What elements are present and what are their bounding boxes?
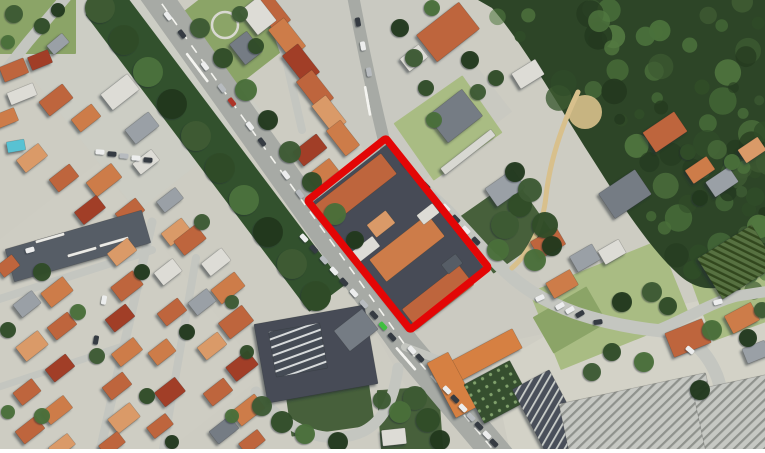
forest-tree (654, 101, 668, 115)
forest-tree (683, 261, 702, 280)
tree (165, 435, 179, 449)
forest-tree (607, 59, 629, 81)
tree (680, 144, 696, 160)
forest-tree (588, 10, 610, 32)
tree (34, 408, 50, 424)
tree (258, 110, 278, 130)
forest-tree (682, 38, 697, 53)
tree (232, 6, 248, 22)
forest-tree (664, 243, 688, 267)
forest-tree (715, 19, 728, 32)
car (95, 149, 104, 155)
tree (34, 18, 50, 34)
tree (690, 380, 710, 400)
forest-tree (639, 152, 659, 172)
tree (225, 295, 239, 309)
tree (470, 84, 486, 100)
satellite-imagery (0, 0, 765, 453)
forest-tree (646, 211, 656, 221)
tree (5, 5, 23, 23)
tree (461, 51, 479, 69)
tree (301, 281, 331, 311)
house (381, 428, 407, 446)
forest-tree (521, 8, 535, 22)
tree (426, 112, 442, 128)
tree (134, 264, 150, 280)
tree (279, 141, 301, 163)
tree (524, 249, 546, 271)
tree (225, 409, 239, 423)
tree (229, 185, 259, 215)
tree (0, 322, 16, 338)
world (0, 0, 765, 453)
tree (488, 70, 504, 86)
tree (416, 408, 440, 432)
forest-tree (699, 114, 717, 132)
forest-tree (752, 17, 765, 30)
tree (373, 391, 391, 409)
forest-tree (746, 187, 765, 206)
tree (532, 212, 558, 238)
forest-tree (700, 7, 717, 24)
forest-tree (634, 109, 644, 119)
tree (391, 19, 409, 37)
tree (271, 411, 293, 433)
tree (205, 153, 235, 183)
tree (109, 25, 139, 55)
forest-tree (708, 140, 727, 159)
tree (51, 3, 65, 17)
car (119, 153, 128, 159)
tree (139, 388, 155, 404)
tree (692, 190, 708, 206)
tree (518, 178, 542, 202)
tree (583, 363, 601, 381)
tree (418, 80, 434, 96)
tree (389, 401, 411, 423)
tree (346, 231, 364, 249)
tree (157, 89, 187, 119)
tree (253, 217, 283, 247)
tree (252, 396, 272, 416)
forest-tree (754, 95, 764, 105)
tree (194, 214, 210, 230)
tree (739, 329, 757, 347)
tree (295, 424, 315, 444)
forest-tree (614, 114, 625, 125)
tree (89, 348, 105, 364)
tree (642, 282, 662, 302)
forest-tree (604, 40, 619, 55)
tree (190, 18, 210, 38)
tree (240, 345, 254, 359)
tree (542, 236, 562, 256)
forest-tree (489, 8, 506, 25)
tree (1, 35, 15, 49)
tree (235, 79, 257, 101)
forest-tree (653, 173, 679, 199)
forest-tree (636, 27, 655, 46)
forest-tree (648, 54, 673, 79)
car (107, 151, 116, 157)
car (143, 157, 152, 163)
tree (181, 121, 211, 151)
tree (70, 304, 86, 320)
tree (505, 162, 525, 182)
forest-tree (551, 70, 577, 96)
forest-tree (738, 108, 749, 119)
car (131, 155, 140, 161)
image-frame-strip (0, 449, 765, 453)
tree (1, 405, 15, 419)
tree (133, 57, 163, 87)
tree (248, 38, 264, 54)
tree (612, 292, 632, 312)
tree (634, 352, 654, 372)
forest-tree (601, 79, 627, 105)
forest-tree (715, 59, 741, 85)
tree (424, 0, 440, 16)
forest-tree (658, 221, 671, 234)
forest-tree (728, 82, 739, 93)
tree (405, 49, 423, 67)
tree (33, 263, 51, 281)
tree (659, 297, 677, 315)
tree (213, 48, 233, 68)
satellite-map-view[interactable] (0, 0, 765, 453)
tree (702, 320, 722, 340)
tree (277, 249, 307, 279)
forest-tree (694, 80, 709, 95)
tree (603, 343, 621, 361)
tree (487, 239, 509, 261)
forest-tree (515, 31, 526, 42)
commercial-skylights (268, 323, 327, 377)
forest-tree (736, 46, 757, 67)
tree (724, 154, 740, 170)
forest-tree (736, 186, 747, 197)
tree (179, 324, 195, 340)
tree (430, 430, 450, 450)
